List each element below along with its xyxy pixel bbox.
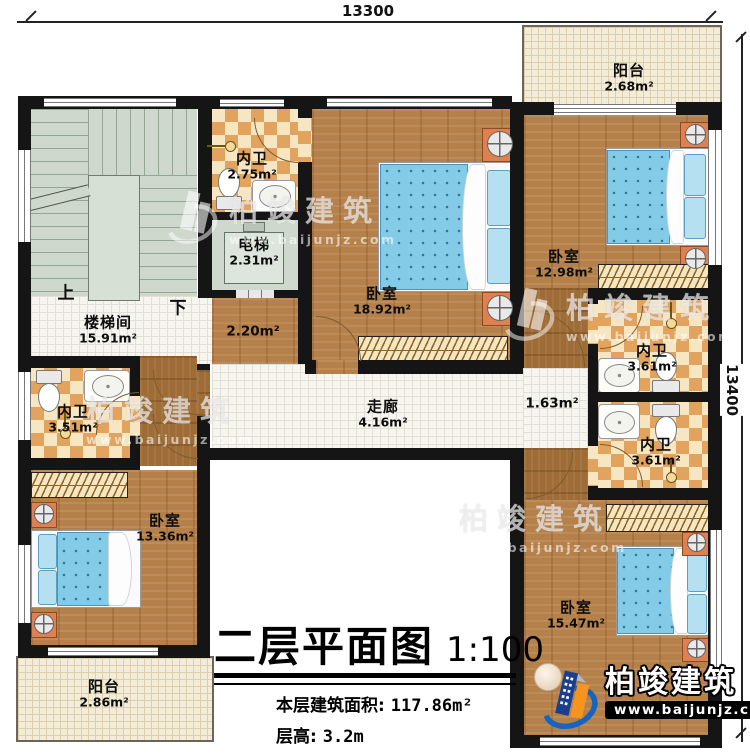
watermark-logo-icon — [396, 494, 452, 556]
elevator-door-gap — [236, 290, 274, 298]
bed-left-pillow-2 — [38, 570, 57, 605]
lamp-bottomright-bottom-icon — [687, 639, 706, 658]
watermark-logo-icon — [503, 283, 559, 345]
dimension-tick-top-left — [25, 10, 36, 21]
floor-height-value: 3.2m — [323, 727, 364, 747]
room-label-bedroom-left: 卧室 13.36m² — [136, 513, 194, 544]
bed-bottomright-blanket-fold — [670, 548, 688, 634]
door-gap-bath-right-lower — [588, 446, 598, 486]
watermark-3: 柏竣建筑 www.baijunjz.com — [86, 388, 254, 447]
room-label-balcony-bottom: 阳台 2.86m² — [79, 679, 128, 710]
bed-topright-pillow-2 — [684, 197, 706, 239]
window-left-stair — [18, 150, 31, 242]
stair-landing-platform — [88, 175, 140, 301]
lamp-master-top-icon — [487, 131, 513, 157]
room-label-bath-right-upper: 内卫 3.61m² — [627, 343, 676, 374]
bed-topright-pillow-1 — [684, 154, 706, 196]
lamp-cord-bath-top — [207, 145, 227, 147]
door-gap-master — [316, 360, 358, 374]
room-label-bath-top: 内卫 2.75m² — [227, 151, 276, 182]
dimension-tick-top-right — [705, 10, 716, 21]
title-underline-thick — [214, 673, 516, 678]
window-bath-top — [220, 99, 284, 107]
floor-area-value: 117.86m² — [391, 696, 473, 716]
bed-master-blanket-fold — [462, 164, 486, 290]
wall-bath-left-bottom — [18, 458, 140, 470]
lamp-left-top-icon — [34, 504, 54, 524]
window-left-bedroom — [18, 545, 31, 623]
floor-plan: 楼梯间 15.91m² 上 下 内卫 2.75m² 电梯 2.31m² 2.20… — [0, 0, 750, 754]
title-underline-thin — [214, 683, 516, 685]
title-block: 二层平面图 1:100 本层建筑面积: 117.86m² 层高: 3.2m — [214, 624, 544, 747]
lamp-topright-bottom-icon — [685, 248, 706, 269]
watermark-4: 柏竣建筑 www.baijunjz.com — [396, 494, 627, 556]
room-label-bedroom-bottomright: 卧室 15.47m² — [547, 600, 605, 631]
bed-topright-mattress — [607, 150, 670, 244]
wall-bath-left-top — [18, 356, 140, 368]
brand-logo-url: www.baijunjz.com — [605, 701, 750, 719]
brand-logo-text: 柏竣建筑 — [605, 666, 737, 701]
floor-height-label: 层高: — [276, 727, 317, 747]
area-label-elevator-hall: 2.20m² — [226, 324, 279, 339]
floor-area-label: 本层建筑面积: — [276, 696, 385, 716]
bed-bottomright-pillow-1 — [687, 552, 707, 592]
floor-height-row: 层高: 3.2m — [276, 722, 544, 747]
bed-left-mattress — [57, 532, 112, 606]
window-stairwell-top — [44, 98, 176, 107]
window-left-bath — [18, 372, 31, 440]
window-bottomright-bottom — [540, 737, 700, 746]
room-label-bedroom-topright: 卧室 12.98m² — [535, 249, 593, 280]
bed-master-pillow-2 — [487, 228, 511, 284]
page-title: 二层平面图 — [214, 624, 434, 670]
wall-corridor-bottom — [210, 448, 523, 460]
lamp-topright-top-icon — [685, 124, 706, 145]
wall-bath-right-divider — [588, 392, 722, 402]
scale-label: 1:100 — [446, 630, 544, 670]
window-right-bottombedroom — [710, 530, 722, 670]
sink-bath-right-lower-icon — [598, 404, 640, 439]
floor-area-row: 本层建筑面积: 117.86m² — [276, 691, 544, 716]
watermark-2: 柏竣建筑 www.baijunjz.com — [503, 283, 734, 345]
stair-treads-top — [88, 109, 197, 175]
window-master-top — [327, 98, 492, 107]
bed-topright-blanket-fold — [666, 150, 684, 244]
room-label-balcony-top: 阳台 2.68m² — [604, 63, 653, 94]
stair-up-label: 上 — [58, 279, 75, 304]
bed-left-blanket-fold — [108, 532, 132, 606]
window-balcony-top-door — [554, 104, 676, 113]
bed-bottomright-mattress — [617, 548, 674, 634]
pendant-bath-right-lower-icon — [666, 472, 677, 483]
area-label-corridor-side: 1.63m² — [525, 396, 578, 411]
dimension-label-top: 13300 — [339, 2, 397, 20]
dimension-label-right: 13400 — [720, 364, 744, 416]
brand-logo-icon — [543, 666, 601, 732]
window-right-topbedroom — [708, 130, 722, 265]
brand-logo: 柏竣建筑 www.baijunjz.com — [543, 666, 750, 732]
room-label-stairwell: 楼梯间 15.91m² — [79, 315, 137, 346]
room-label-corridor: 走廊 4.16m² — [358, 399, 407, 430]
watermark-1: 柏竣建筑 www.baijunjz.com — [166, 186, 397, 248]
dimension-line-top — [17, 21, 723, 23]
bed-left-pillow-1 — [38, 534, 57, 569]
door-gap-bath-top — [298, 118, 312, 162]
window-balcony-bottom-door — [48, 647, 158, 656]
lamp-bottomright-top-icon — [687, 533, 706, 552]
lamp-left-bottom-icon — [34, 614, 54, 634]
stair-down-label: 下 — [170, 294, 187, 319]
watermark-logo-icon — [166, 186, 222, 248]
bed-bottomright-pillow-2 — [687, 594, 707, 634]
room-label-bedroom-master: 卧室 18.92m² — [353, 286, 411, 317]
bed-master-pillow-1 — [487, 170, 511, 226]
room-label-bath-right-lower: 内卫 3.61m² — [631, 437, 680, 468]
wardrobe-left — [31, 472, 128, 498]
